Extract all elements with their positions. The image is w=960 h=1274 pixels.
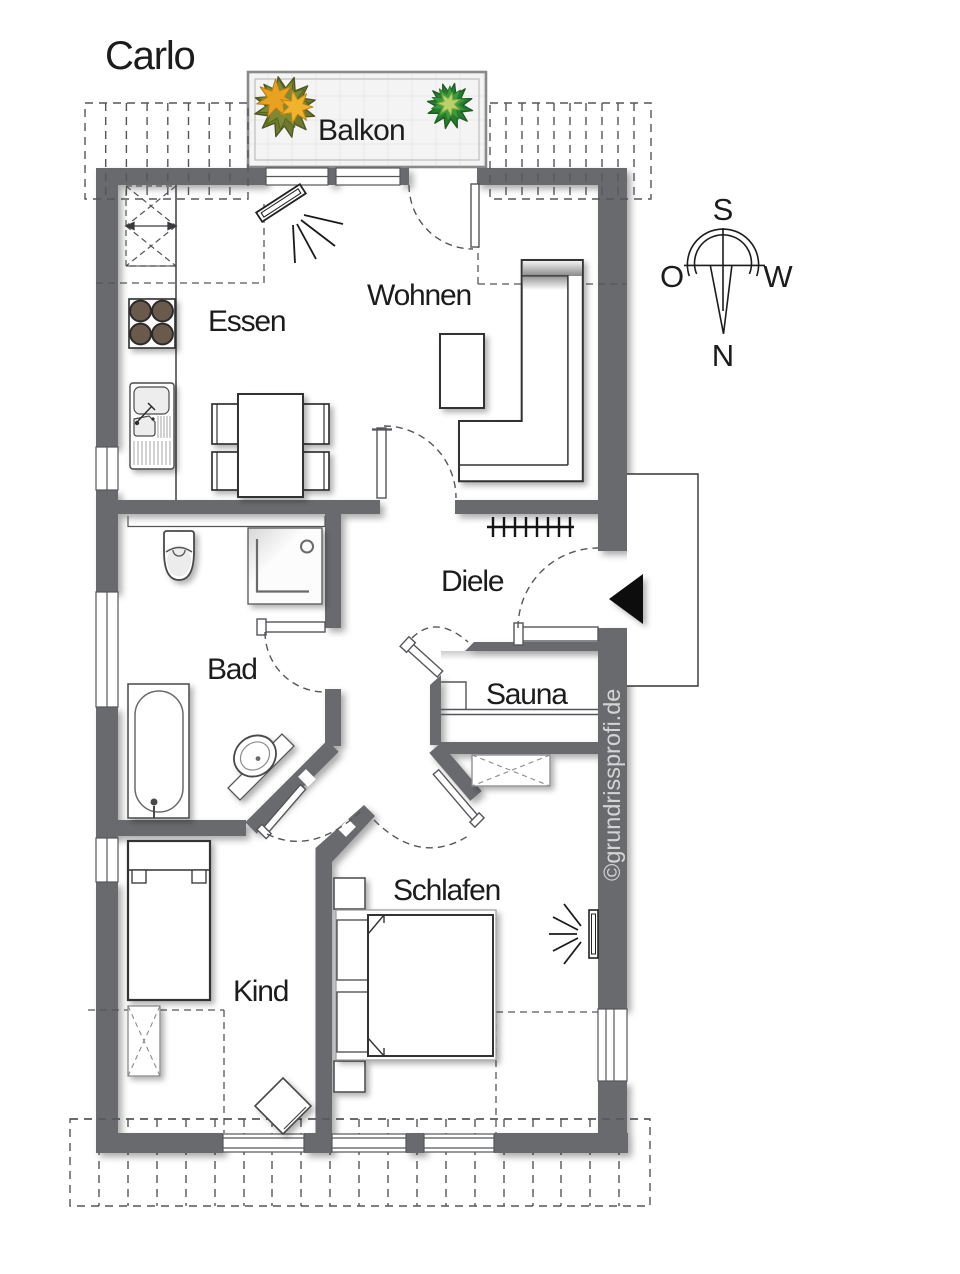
svg-text:Schlafen: Schlafen: [393, 874, 500, 907]
svg-text:Sauna: Sauna: [486, 678, 568, 711]
svg-text:Bad: Bad: [207, 653, 257, 686]
svg-text:W: W: [763, 259, 793, 294]
svg-text:©grundrissprofi.de: ©grundrissprofi.de: [599, 689, 625, 881]
svg-text:Balkon: Balkon: [318, 114, 405, 147]
svg-text:Wohnen: Wohnen: [367, 279, 471, 312]
svg-text:Kind: Kind: [233, 975, 288, 1008]
svg-text:S: S: [713, 192, 734, 227]
svg-text:Diele: Diele: [441, 565, 504, 598]
svg-text:Essen: Essen: [208, 305, 285, 338]
svg-text:N: N: [712, 338, 734, 373]
svg-text:O: O: [660, 259, 684, 294]
svg-text:Carlo: Carlo: [105, 34, 195, 78]
